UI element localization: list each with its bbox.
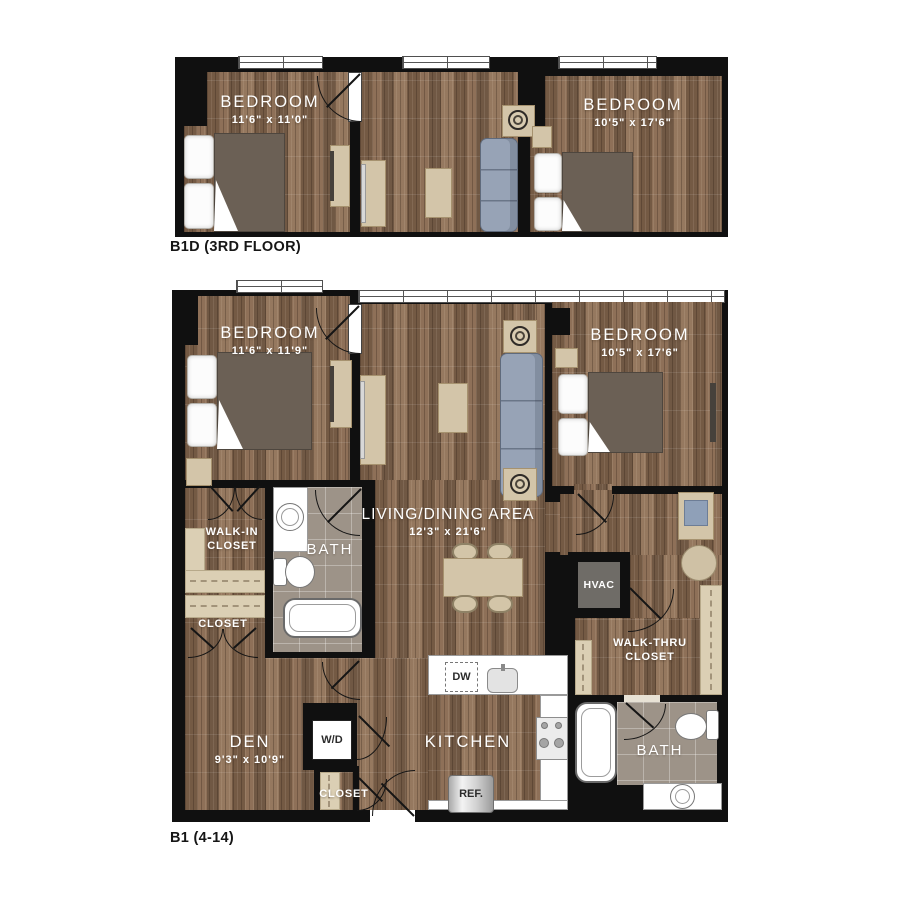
burner-icon (541, 722, 548, 729)
dining-chair (452, 595, 478, 613)
bed-pillow (558, 374, 588, 414)
coffee-table (425, 168, 452, 218)
floorplan-page: { "colors": { "wood": "#8b6f57", "wall":… (0, 0, 900, 900)
mirror (361, 164, 366, 223)
lamp-icon (508, 110, 528, 130)
room-label-closet-1: CLOSET (183, 617, 263, 631)
sofa (480, 138, 518, 232)
room-label-kitchen: KITCHEN (413, 733, 523, 751)
window (236, 280, 323, 293)
toilet-bowl (675, 713, 707, 740)
room-label-walk-in-closet: WALK-IN CLOSET (192, 525, 272, 554)
window (238, 56, 323, 69)
faucet-icon (501, 664, 505, 671)
room-label-living: LIVING/DINING AREA 12'3" x 21'6" (358, 506, 538, 538)
room-label-bath-2: BATH (610, 743, 710, 760)
room-name: BEDROOM (195, 324, 345, 342)
bed-pillow (534, 153, 562, 193)
tv-icon (710, 383, 716, 442)
room-label-closet-2: CLOSET (309, 787, 379, 801)
bed-pillow (184, 183, 214, 229)
dining-chair (487, 595, 513, 613)
kitchen-sink (487, 668, 518, 693)
room-name: BEDROOM (565, 326, 715, 344)
bed-pillow (184, 135, 214, 179)
room-name: BEDROOM (195, 93, 345, 111)
room-label-bath-1: BATH (290, 542, 370, 559)
toilet-bowl (285, 556, 315, 588)
bed-pillow (558, 418, 588, 456)
lamp-icon (510, 326, 530, 346)
tv-icon (330, 151, 334, 201)
bed-pillow (187, 355, 217, 399)
window (558, 56, 657, 69)
wall (552, 486, 574, 494)
toilet-tank (706, 710, 719, 740)
bathroom-sink (276, 503, 304, 531)
plan-title-b1: B1 (4-14) (170, 830, 234, 846)
nightstand (532, 126, 552, 148)
hvac-unit: HVAC (578, 562, 620, 608)
bathroom-sink (670, 784, 695, 809)
bathtub (283, 598, 362, 638)
lamp-icon (510, 474, 530, 494)
bed-pillow (534, 197, 562, 231)
room-name: LIVING/DINING AREA (358, 506, 538, 523)
floorplan-b1: W/D HVAC DW REF. (170, 278, 730, 853)
mirror (360, 381, 365, 459)
closet-rod (710, 590, 712, 690)
room-dims: 10'5" x 17'6" (565, 347, 715, 359)
plan-title-b1d: B1D (3RD FLOOR) (170, 239, 301, 255)
room-label-bedroom-2: BEDROOM 10'5" x 17'6" (558, 96, 708, 129)
room-name: DEN (180, 733, 320, 751)
burner-icon (555, 722, 562, 729)
burner-icon (554, 738, 564, 748)
room-label-bedroom-2: BEDROOM 10'5" x 17'6" (565, 326, 715, 359)
room-dims: 10'5" x 17'6" (558, 117, 708, 129)
refrigerator: REF. (448, 775, 494, 813)
nightstand (186, 458, 212, 486)
desk-chair (684, 500, 708, 526)
room-dims: 11'6" x 11'0" (195, 114, 345, 126)
tv-icon (330, 366, 334, 422)
room-label-den: DEN 9'3" x 10'9" (180, 733, 320, 766)
bed-pillow (187, 403, 217, 447)
dining-table (443, 558, 523, 597)
room-label-bedroom-1: BEDROOM 11'6" x 11'0" (195, 93, 345, 126)
room-label-bedroom-1: BEDROOM 11'6" x 11'9" (195, 324, 345, 357)
closet-rod (190, 580, 260, 582)
floorplan-b1d: BEDROOM 11'6" x 11'0" BEDROOM 10'5" x 17… (170, 52, 730, 264)
room-name: BEDROOM (558, 96, 708, 114)
room-dims: 11'6" x 11'9" (195, 345, 345, 357)
window (402, 56, 490, 69)
room-dims: 9'3" x 10'9" (180, 754, 320, 766)
burner-icon (539, 738, 549, 748)
dishwasher: DW (445, 662, 478, 692)
door-opening (624, 695, 660, 702)
room-label-walk-thru-closet: WALK-THRU CLOSET (590, 636, 710, 665)
coffee-table (438, 383, 468, 433)
closet-rod (190, 605, 260, 607)
round-table (681, 545, 717, 581)
closet-rod (582, 644, 584, 691)
room-dims: 12'3" x 21'6" (358, 526, 538, 538)
